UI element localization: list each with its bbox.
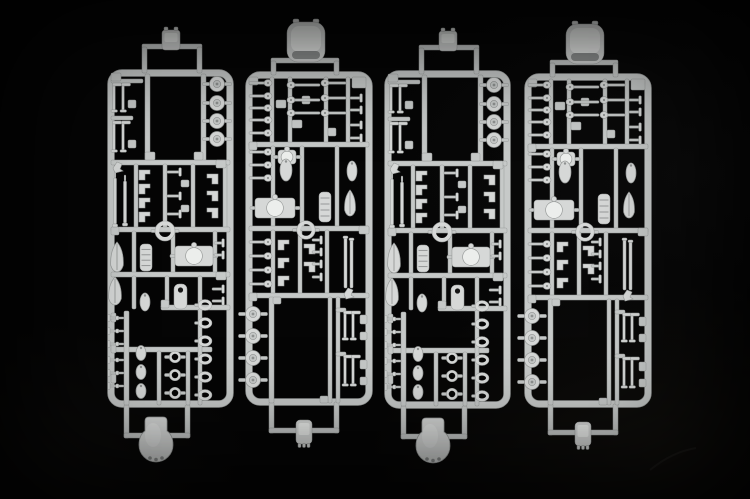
sprue-3 [385,28,509,463]
sprue-4 [518,21,649,450]
sprue-2 [239,19,370,448]
background-scratch [650,448,696,470]
photo-of-model-kit-sprues [0,0,750,499]
sprue-1 [108,27,232,462]
sprues-photo-svg [0,0,750,499]
